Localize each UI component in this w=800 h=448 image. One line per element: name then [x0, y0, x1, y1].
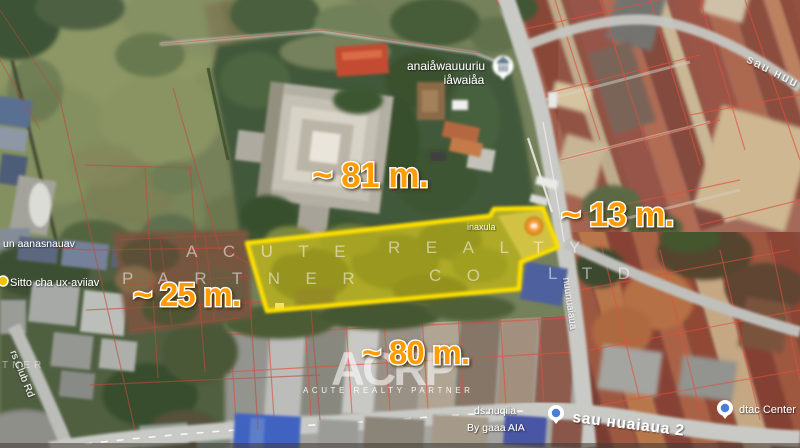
svg-text:Sitto cha ux-aviiav: Sitto cha ux-aviiav	[10, 277, 100, 289]
svg-text:dtac Center: dtac Center	[739, 404, 796, 416]
svg-text:un aanasnauav: un aanasnauav	[3, 238, 76, 250]
svg-text:REALTY: REALTY	[388, 238, 606, 257]
svg-text:~ 80 m.: ~ 80 m.	[362, 334, 469, 371]
svg-text:inaxula: inaxula	[467, 222, 496, 232]
svg-text:anaiåwauuuriu: anaiåwauuuriu	[407, 59, 485, 73]
svg-text:By gaaa AIA: By gaaa AIA	[467, 422, 525, 434]
svg-text:~ 13 m.: ~ 13 m.	[561, 196, 674, 234]
svg-text:iåwaiåa: iåwaiåa	[444, 73, 485, 87]
svg-text:~ 81 m.: ~ 81 m.	[312, 156, 428, 195]
svg-text:CO: CO	[429, 266, 506, 285]
svg-text:ds:nuqiia: ds:nuqiia	[474, 405, 516, 417]
svg-text:ACUTE REALTY PARTNER: ACUTE REALTY PARTNER	[303, 386, 473, 395]
svg-text:ACUTE: ACUTE	[186, 242, 371, 261]
svg-text:~ 25 m.: ~ 25 m.	[133, 276, 240, 313]
